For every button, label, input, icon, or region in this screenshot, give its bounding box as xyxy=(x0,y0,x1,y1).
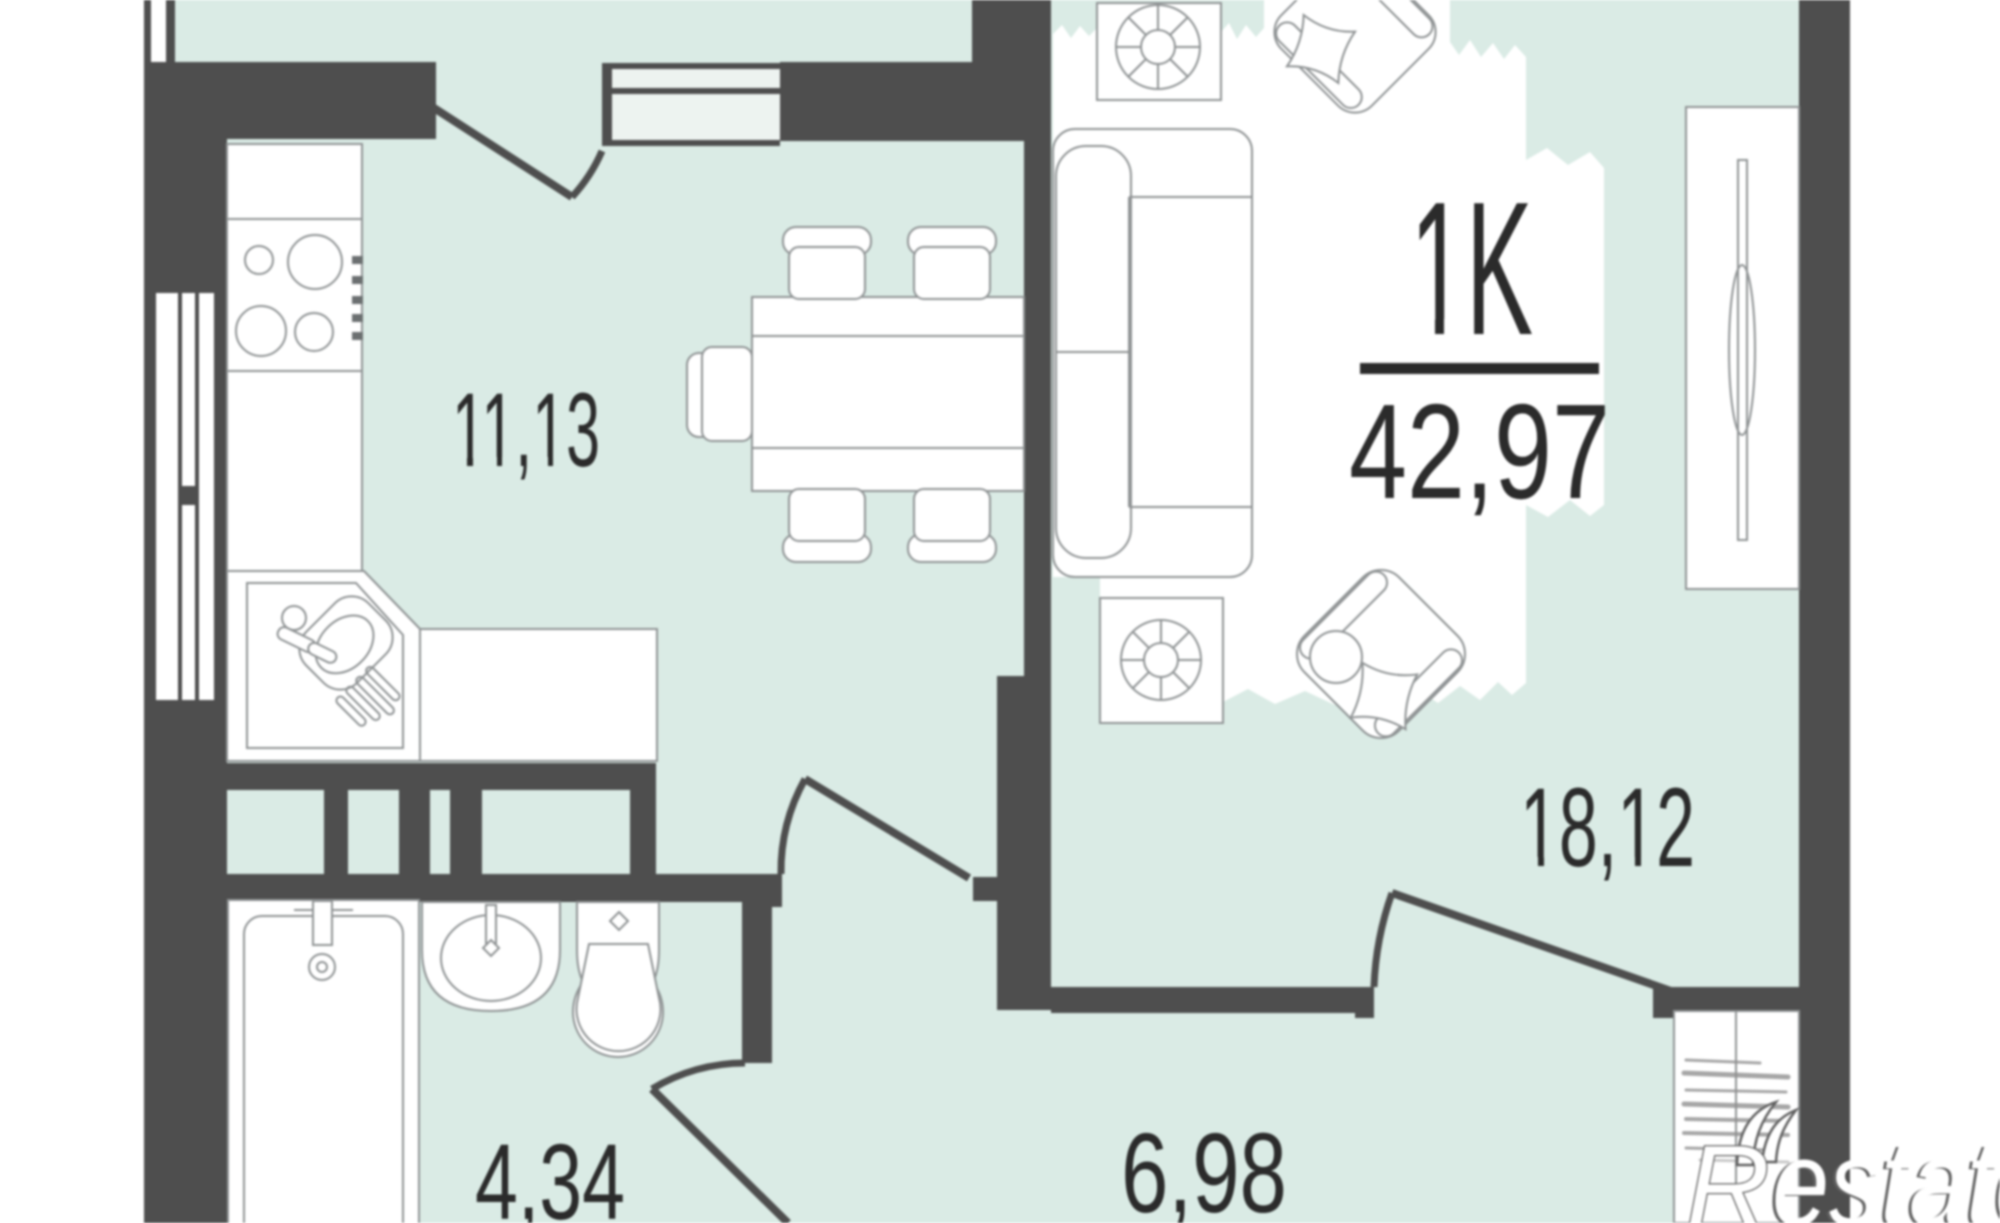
svg-text:42,97: 42,97 xyxy=(1349,376,1610,527)
svg-text:1K: 1K xyxy=(1410,163,1533,375)
svg-text:estate: estate xyxy=(1772,1115,2000,1223)
svg-text:11,13: 11,13 xyxy=(452,372,600,489)
svg-text:18,12: 18,12 xyxy=(1520,765,1695,890)
svg-text:4,34: 4,34 xyxy=(475,1121,625,1223)
svg-text:6,98: 6,98 xyxy=(1121,1110,1287,1223)
svg-text:R: R xyxy=(1686,1121,1770,1223)
